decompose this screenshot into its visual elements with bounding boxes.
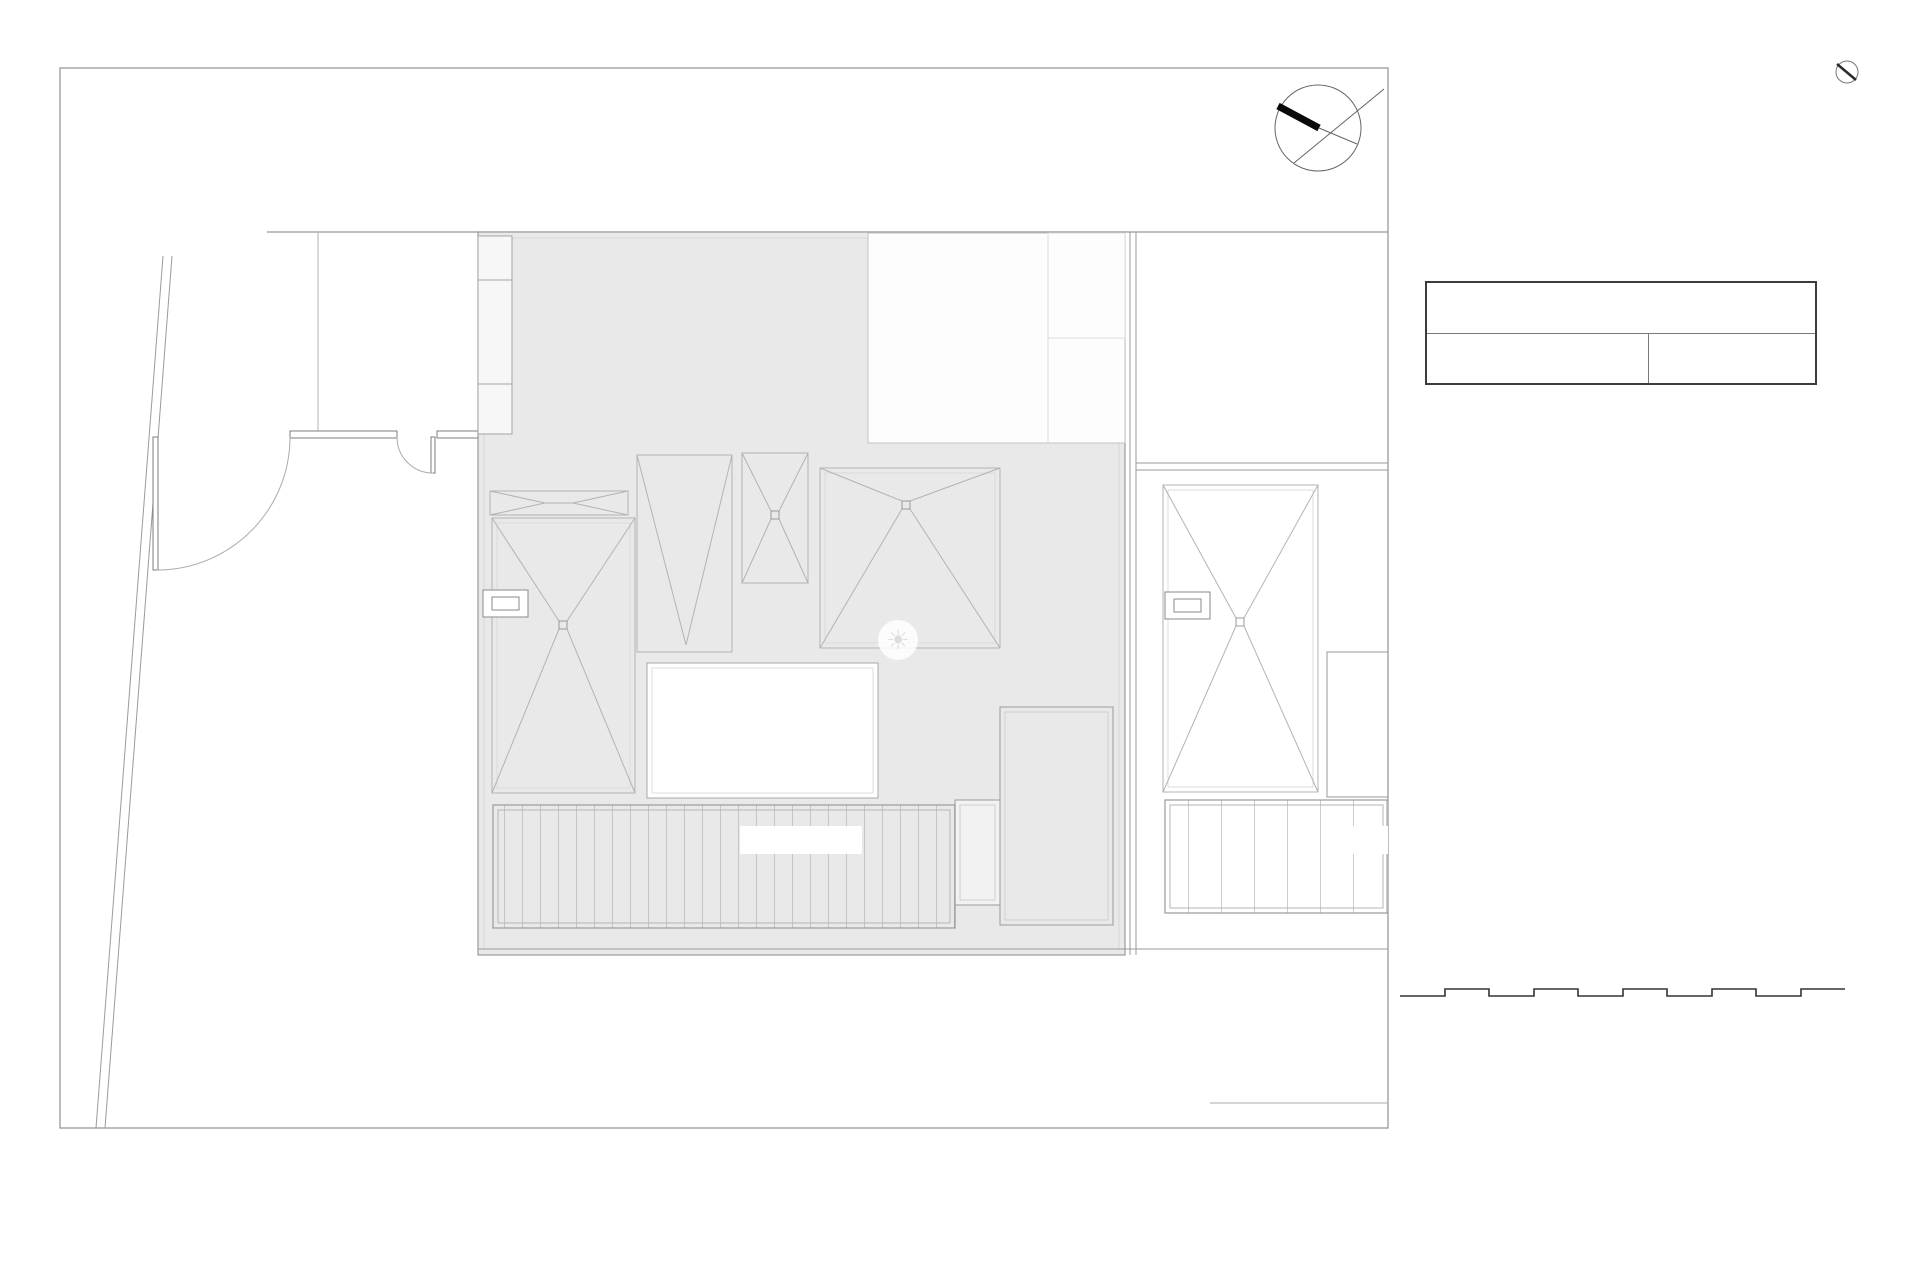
parcel-2-vent bbox=[1165, 592, 1210, 619]
overview-compass-icon bbox=[1836, 61, 1858, 83]
parcel-1-hatch-band bbox=[493, 805, 955, 928]
parcel-2-hatch-band bbox=[1165, 800, 1390, 913]
storage-boxes bbox=[478, 236, 512, 434]
column-header bbox=[1649, 334, 1815, 383]
parcel-1-vent bbox=[483, 590, 528, 617]
plan-drawing bbox=[0, 0, 1920, 1280]
empty-header-cell bbox=[1427, 334, 1649, 383]
graphic-scale-bar bbox=[1400, 989, 1845, 996]
parcel-1-terrace bbox=[647, 663, 878, 798]
table-title-row bbox=[1427, 283, 1815, 333]
site-plan-page: ☀ bbox=[0, 0, 1920, 1280]
parcel-1 bbox=[478, 232, 1125, 955]
parcel-surface-table bbox=[1425, 281, 1817, 385]
table-header-row bbox=[1427, 333, 1815, 383]
